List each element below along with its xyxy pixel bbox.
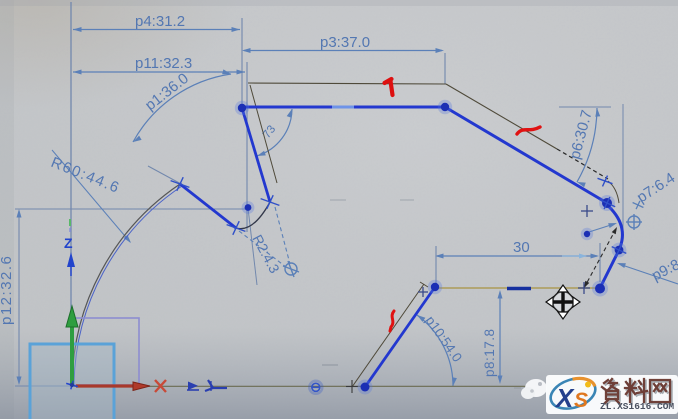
- svg-text:p12:32.6: p12:32.6: [0, 255, 15, 325]
- svg-text:Z: Z: [64, 235, 73, 251]
- svg-text:ZL.XS1616.COM: ZL.XS1616.COM: [600, 401, 674, 412]
- svg-text:p11:32.3: p11:32.3: [135, 55, 192, 72]
- svg-text:30: 30: [513, 239, 530, 256]
- svg-text:S: S: [574, 389, 588, 412]
- svg-text:p3:37.0: p3:37.0: [320, 34, 370, 51]
- svg-text:p4:31.2: p4:31.2: [135, 13, 185, 30]
- svg-text:X: X: [554, 383, 575, 413]
- svg-text:p8:17.8: p8:17.8: [482, 328, 497, 377]
